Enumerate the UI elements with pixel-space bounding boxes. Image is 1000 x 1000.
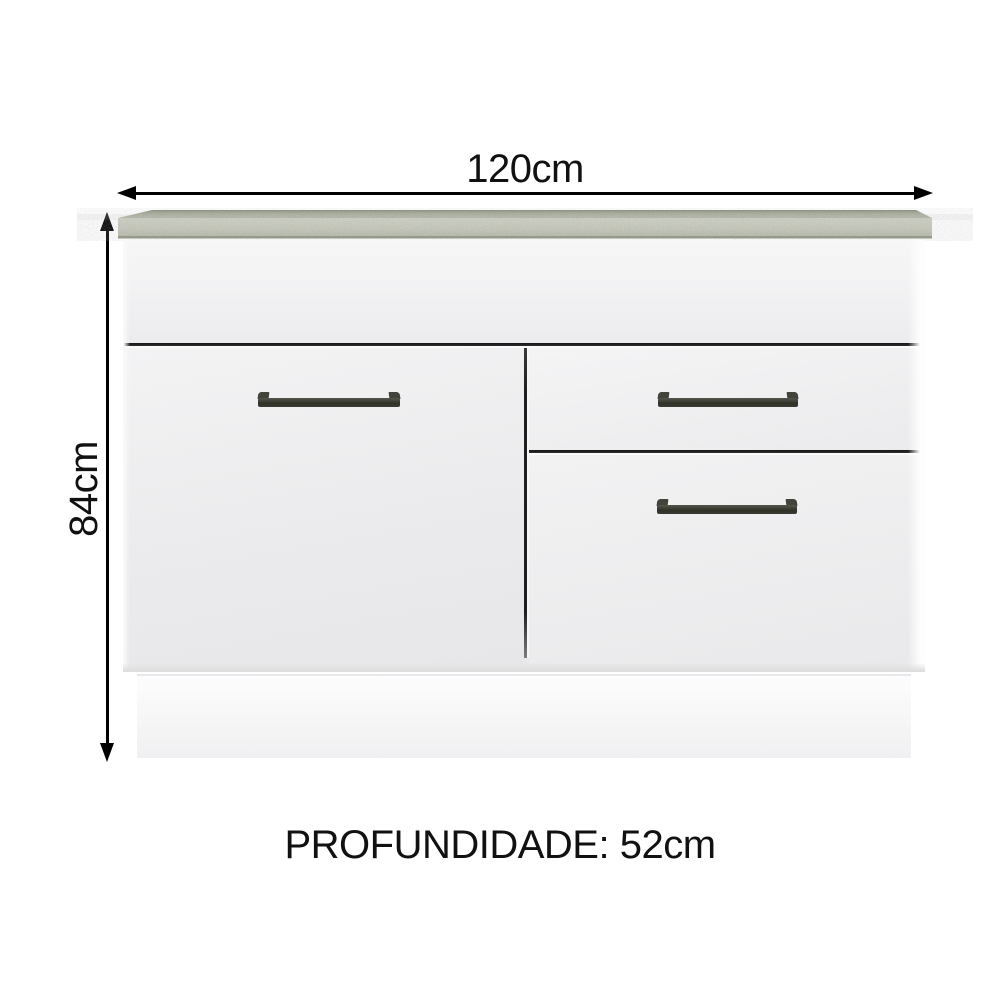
door-handle xyxy=(258,391,400,407)
arrowhead-left-icon xyxy=(117,186,136,200)
base-plinth xyxy=(137,674,911,758)
handle-bar xyxy=(658,398,798,407)
width-dimension-label: 120cm xyxy=(120,149,930,189)
top-drawer-handle xyxy=(658,391,798,407)
handle-bar xyxy=(657,505,797,514)
width-arrow-line xyxy=(134,192,916,195)
depth-dimension-label: PROFUNDIDADE: 52cm xyxy=(0,825,1000,865)
height-arrow-line xyxy=(106,229,109,745)
handle-bar xyxy=(258,398,400,407)
body-left-edge-highlight xyxy=(123,240,130,672)
body-bottom-edge-shadow xyxy=(123,663,925,672)
drawer-groove-highlight xyxy=(527,453,925,455)
arrowhead-down-icon xyxy=(100,743,114,762)
countertop-bottom-edge xyxy=(118,236,932,239)
height-dimension-label: 84cm xyxy=(64,441,104,537)
door-drawer-divider-highlight xyxy=(527,348,529,658)
right-bottom-drawer xyxy=(529,455,925,664)
arrowhead-right-icon xyxy=(914,186,933,200)
bottom-drawer-handle xyxy=(657,498,797,514)
fixed-top-panel xyxy=(123,240,925,343)
body-right-edge-highlight xyxy=(908,240,925,672)
product-dimension-diagram: 120cm 84cm xyxy=(0,0,1000,1000)
